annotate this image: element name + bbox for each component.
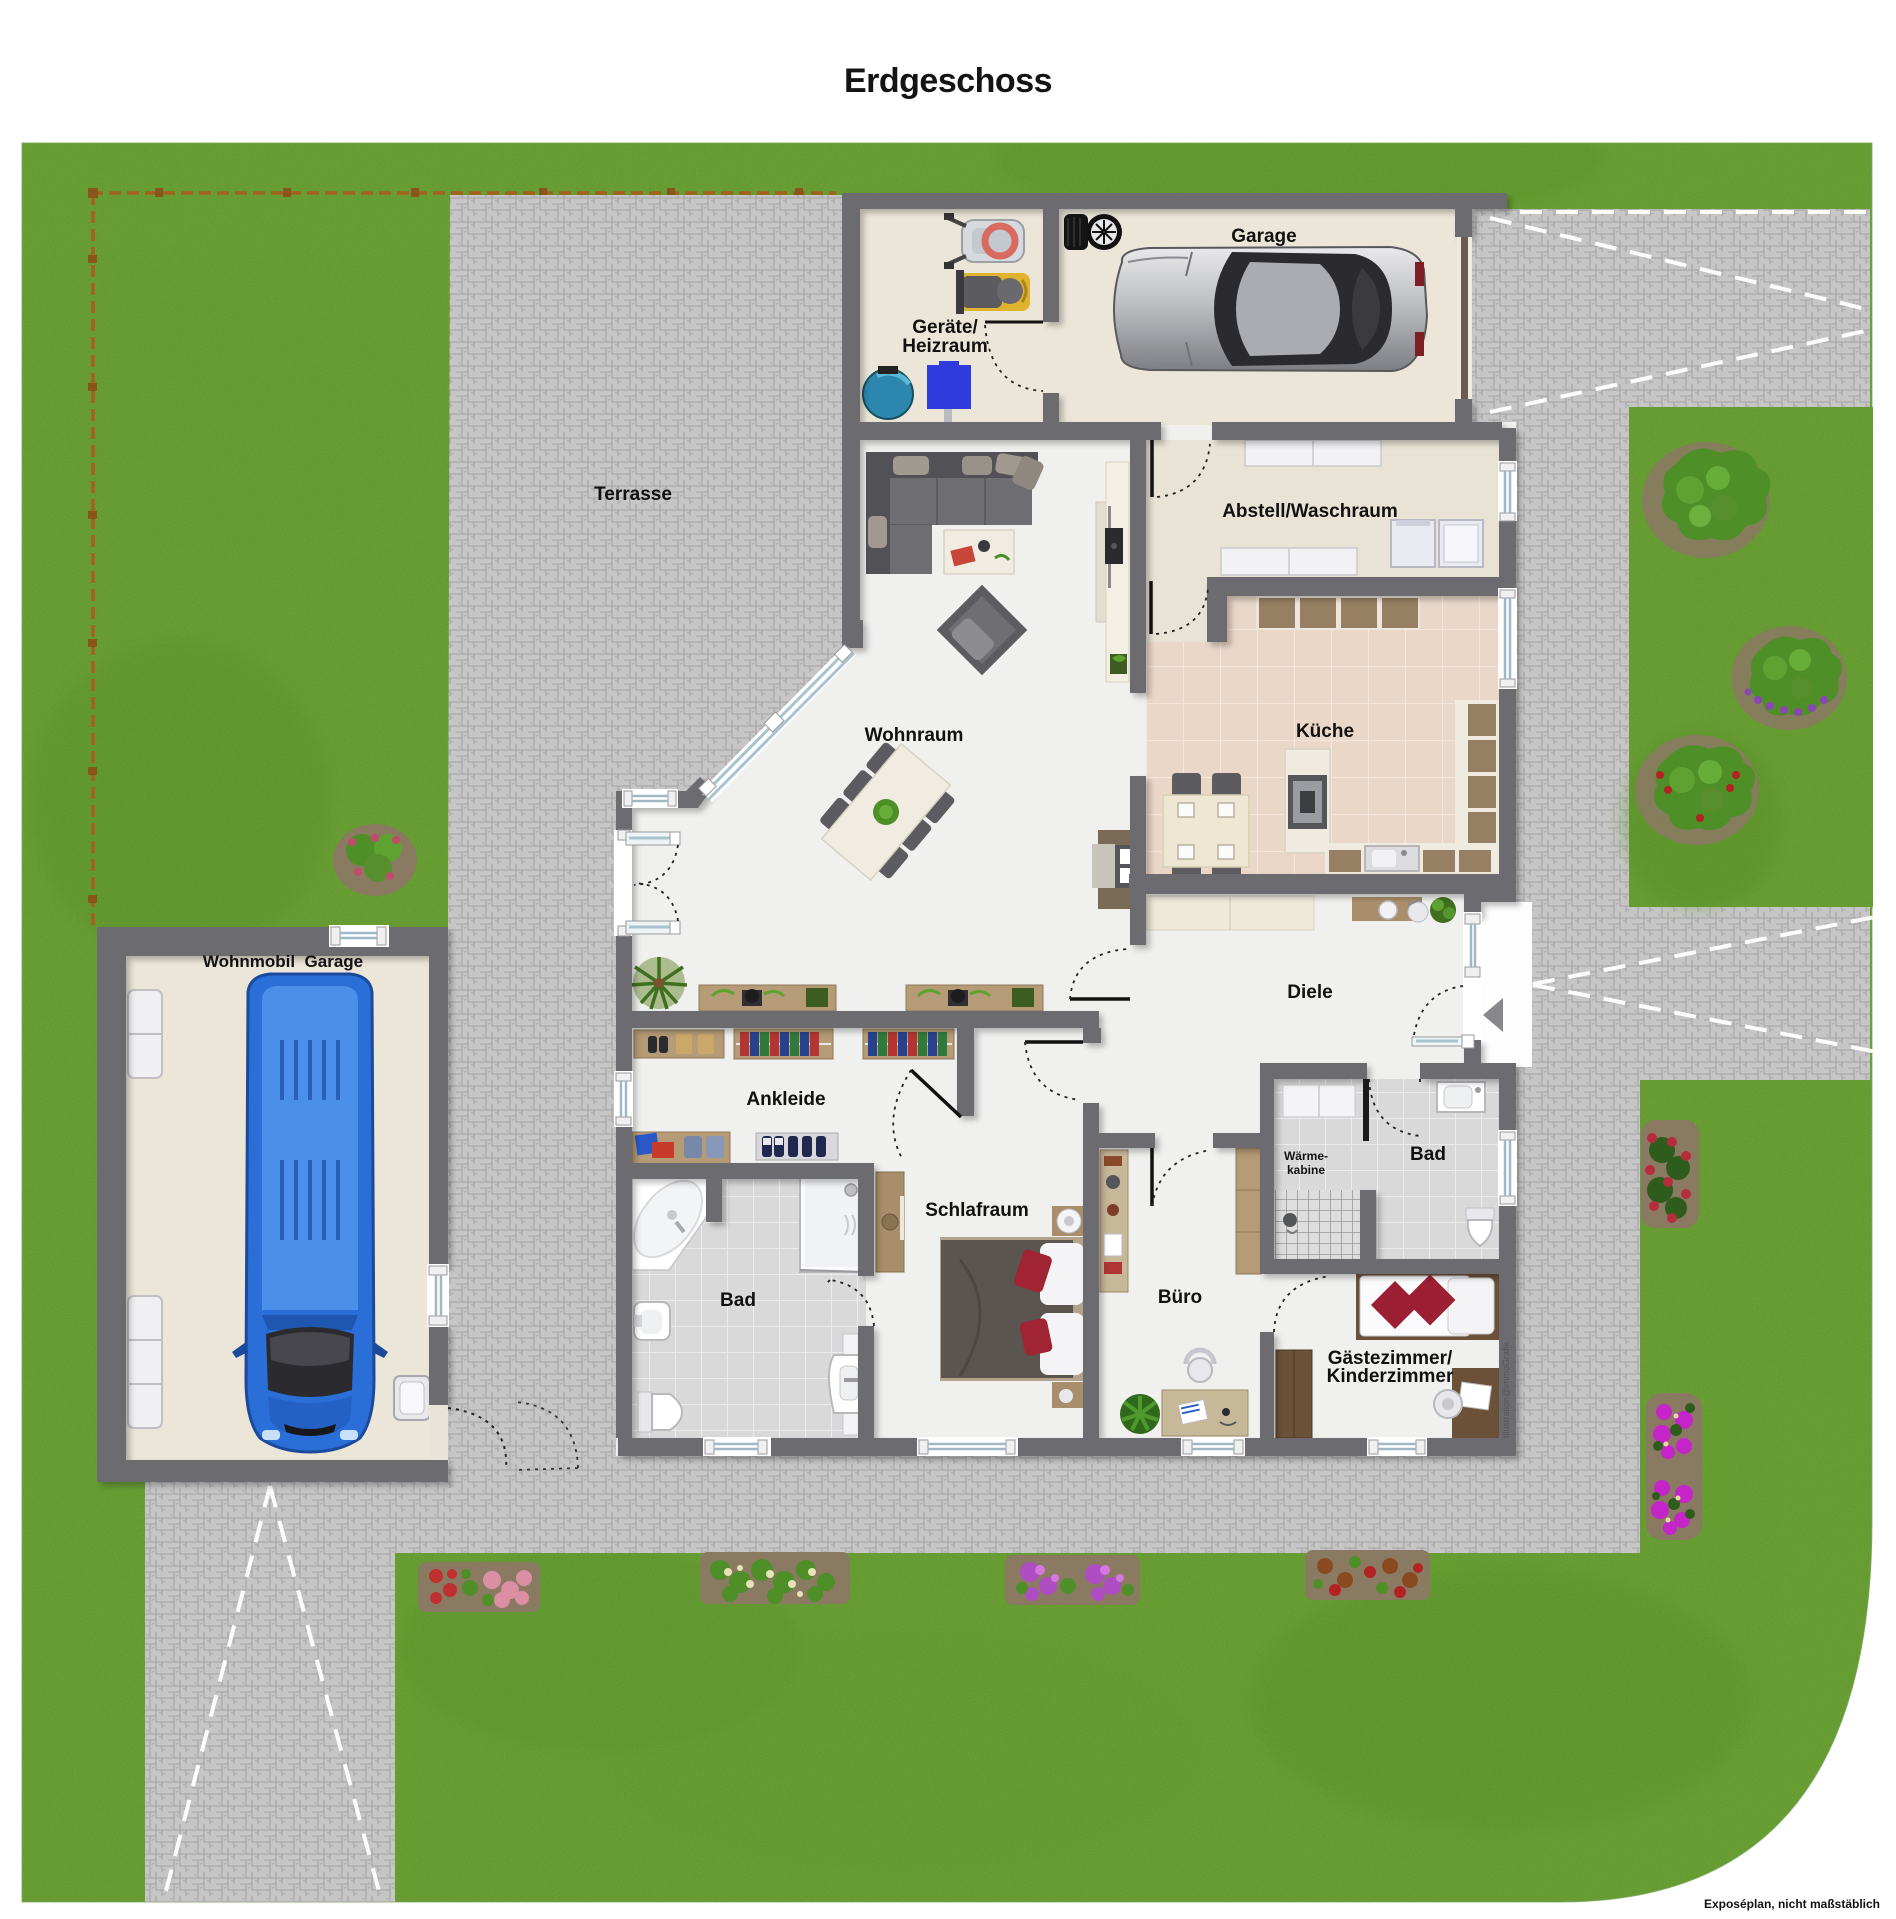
svg-text:Küche: Küche — [1296, 721, 1354, 742]
svg-text:Büro: Büro — [1158, 1287, 1202, 1308]
svg-text:Heizraum: Heizraum — [902, 336, 988, 357]
svg-text:Diele: Diele — [1287, 982, 1332, 1003]
svg-text:Abstell/Waschraum: Abstell/Waschraum — [1222, 501, 1398, 522]
svg-text:Terrasse: Terrasse — [594, 484, 672, 505]
svg-text:Bad: Bad — [720, 1290, 756, 1311]
svg-text:Geräte/: Geräte/ — [912, 317, 978, 338]
svg-text:Garage: Garage — [1231, 226, 1296, 247]
svg-text:Exposéplan, nicht maßstäblich: Exposéplan, nicht maßstäblich — [1704, 1897, 1880, 1911]
svg-text:Schlafraum: Schlafraum — [925, 1200, 1028, 1221]
svg-text:Kinderzimmer: Kinderzimmer — [1327, 1366, 1454, 1387]
svg-text:Wohnmobil Garage: Wohnmobil Garage — [203, 952, 363, 971]
svg-text:Bad: Bad — [1410, 1144, 1446, 1165]
svg-text:Erdgeschoss: Erdgeschoss — [844, 62, 1052, 100]
svg-text:Illustration@immoGrafik: Illustration@immoGrafik — [1501, 1341, 1511, 1438]
svg-text:kabine: kabine — [1287, 1163, 1325, 1177]
svg-text:Wohnraum: Wohnraum — [865, 725, 964, 746]
svg-text:Wärme-: Wärme- — [1284, 1149, 1328, 1163]
svg-text:Ankleide: Ankleide — [746, 1089, 825, 1110]
